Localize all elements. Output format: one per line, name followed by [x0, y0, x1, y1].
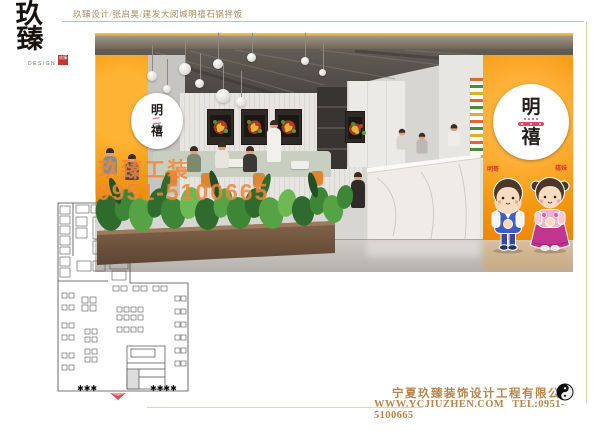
pendant-lamp-icon: [236, 97, 246, 107]
pendant-lamp-icon: [163, 85, 171, 93]
pendant-lamp-icon: [216, 89, 230, 103]
pendant-lamp-icon: [147, 71, 157, 81]
interior-render: 明 二 禧: [95, 33, 573, 272]
disc-char: 明: [521, 98, 540, 117]
pendant-lamp-icon: [195, 79, 204, 88]
brand-disc-sign-left: 明 二 禧: [131, 93, 183, 149]
plan-bar-block: [127, 346, 165, 389]
disc-char-middle: 二: [152, 116, 162, 125]
person-figure: [448, 125, 460, 147]
studio-logo: 玖臻 DESIGN玖臻: [16, 2, 78, 68]
brand-disc-sign-right: 明 禧: [493, 84, 569, 160]
logo-design-caption: DESIGN: [28, 61, 56, 67]
watermark-phone: 0951-5100665: [97, 179, 269, 206]
plan-plant-symbols: ✱✱✱: [77, 384, 97, 393]
mascot-girl-label: 禧妹: [555, 163, 567, 172]
header-divider: [62, 21, 584, 22]
disc-char: 禧: [521, 128, 540, 147]
logo-red-seal-icon: 玖臻: [58, 55, 68, 65]
right-border-line: [586, 22, 587, 403]
disc-red-bar: [518, 122, 544, 126]
project-title-line: 玖臻设计/张启昊/建发大阅城明禧石锅拌饭: [73, 8, 243, 20]
food-poster: [207, 109, 234, 145]
disc-char: 禧: [151, 125, 163, 138]
pendant-lamp-icon: [179, 63, 191, 75]
logo-calligraphy: 玖臻: [15, 1, 47, 52]
pendant-lamp-icon: [247, 53, 256, 62]
food-poster: [241, 109, 268, 145]
pendant-lamp-icon: [301, 57, 309, 65]
presentation-page: 玖臻 DESIGN玖臻 玖臻设计/张启昊/建发大阅城明禧石锅拌饭: [0, 0, 610, 431]
plan-tables: [62, 286, 186, 370]
pendant-lamp-icon: [319, 69, 326, 76]
pendant-lamp-icon: [213, 59, 223, 69]
website: WWW.YCJIUZHEN.COM: [374, 399, 504, 410]
food-poster: [345, 111, 365, 143]
counter-reflection: [367, 241, 480, 257]
plan-plant-symbols: ✱✱✱✱: [150, 384, 177, 393]
mascot-boy-label: 明哥: [487, 164, 499, 173]
disc-mini-text: [524, 118, 538, 120]
hanbok-mascots: [483, 173, 573, 255]
contact-line: WWW.YCJIUZHEN.COMTEL:0951-5100665: [374, 399, 610, 421]
